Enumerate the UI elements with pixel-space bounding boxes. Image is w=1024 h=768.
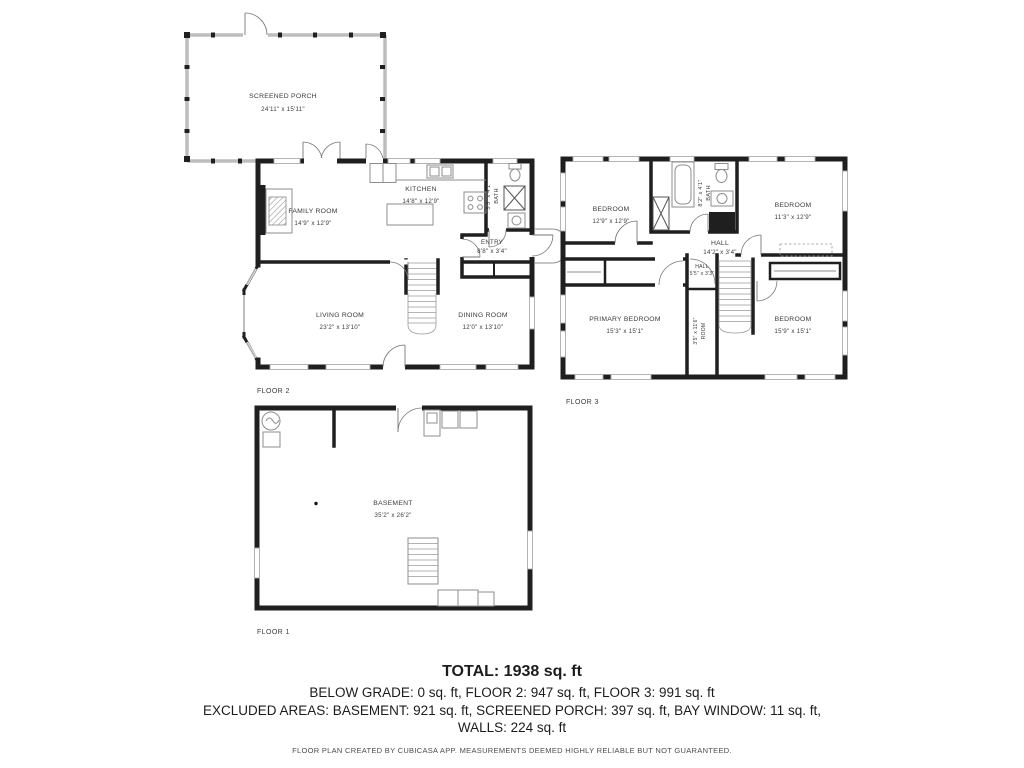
storage-boxes [438,590,494,606]
kitchen-label: KITCHEN [405,186,437,193]
excluded-areas: EXCLUDED AREAS: BASEMENT: 921 sq. ft, SC… [0,702,1024,720]
floor3-caption: FLOOR 3 [566,399,599,406]
porch-label: SCREENED PORCH [249,93,317,100]
primary-bedroom-label: PRIMARY BEDROOM [589,316,661,323]
basement-door-icon [398,408,422,432]
living-room-dims: 23'2" x 13'10" [320,324,361,331]
water-heater-icon [262,412,280,447]
bedroom-tl-dims: 12'9" x 12'9" [592,218,629,225]
hall-small-dims: 5'5" x 3'3" [690,271,715,277]
floor1-caption: FLOOR 1 [257,629,290,636]
toilet-icon [509,164,521,182]
floor1-plan: BASEMENT 35'2" x 26'2" [250,398,540,628]
dining-room-dims: 12'0" x 13'10" [463,324,504,331]
bedroom-br-dims: 15'9" x 15'1" [774,328,811,335]
kitchen-counter [396,165,486,180]
entry-dims: 8'8" x 3'4" [477,248,507,255]
primary-bedroom-dims: 15'3" x 15'1" [606,328,643,335]
room-dims: 3'5" x 11'6" [693,317,699,344]
bedroom-tl-label: BEDROOM [593,206,630,213]
basement-dot [314,502,317,505]
kitchen-dims: 14'8" x 12'9" [402,198,439,205]
chimney [709,212,735,232]
area-summary: TOTAL: 1938 sq. ft BELOW GRADE: 0 sq. ft… [0,663,1024,755]
floor-plan-page: SCREENED PORCH 24'11" x 15'11" [0,0,1024,768]
bedroom-br-label: BEDROOM [775,316,812,323]
bedroom-tr-dims: 11'3" x 12'9" [775,214,812,221]
basement-stairs-icon [408,538,438,584]
basement-label: BASEMENT [373,500,412,507]
bath3-dims: 8'2" x 4'1" [698,179,704,206]
linen-closet-icon [653,197,669,230]
bathtub-icon [672,162,694,207]
floor2-caption: FLOOR 2 [257,388,290,395]
hall-dims: 14'2" x 3'4" [703,249,737,256]
bath3-label: BATH [706,185,712,201]
walls-area: WALLS: 224 sq. ft [0,719,1024,737]
dining-room-label: DINING ROOM [458,312,508,319]
fireplace-icon [256,185,293,235]
room-label: ROOM [701,323,707,340]
fridge-icon [370,164,396,183]
basement-dims: 35'2" x 26'2" [374,512,411,519]
bedroom-tr-label: BEDROOM [775,202,812,209]
shower-icon [504,186,525,210]
disclaimer: FLOOR PLAN CREATED BY CUBICASA APP. MEAS… [0,746,1024,755]
porch-dims: 24'11" x 15'11" [261,106,305,113]
floor2-stairs-icon [408,263,436,334]
floor2-plan: FAMILY ROOM 14'9" x 12'9" KITCHEN 14'8" … [240,155,570,405]
hall-label: HALL [711,240,729,247]
floor3-stairs-icon [719,261,751,333]
entry-label: ENTRY [481,239,503,246]
bath2-dims: 5'5" x 4'1" [486,182,492,209]
sink-icon [508,213,525,228]
hall-small-label: HALL [695,264,709,270]
basement-windows [255,531,533,578]
screened-porch-plan: SCREENED PORCH 24'11" x 15'11" [183,5,393,170]
kitchen-island [387,204,433,225]
laundry-icon [424,410,477,436]
family-room-label: FAMILY ROOM [288,208,337,215]
floor2-door-arcs [383,230,553,367]
stove-icon [464,192,486,213]
total-area: TOTAL: 1938 sq. ft [0,663,1024,681]
basement-walls [257,408,530,608]
sink-icon [711,191,733,206]
living-room-label: LIVING ROOM [316,312,364,319]
bath2-label: BATH [494,188,500,204]
toilet-icon [715,164,728,183]
area-by-floor: BELOW GRADE: 0 sq. ft, FLOOR 2: 947 sq. … [0,684,1024,702]
floor3-plan: BEDROOM 12'9" x 12'9" 8'2" x 4'1" BATH B… [555,155,855,405]
family-room-dims: 14'9" x 12'9" [294,220,331,227]
